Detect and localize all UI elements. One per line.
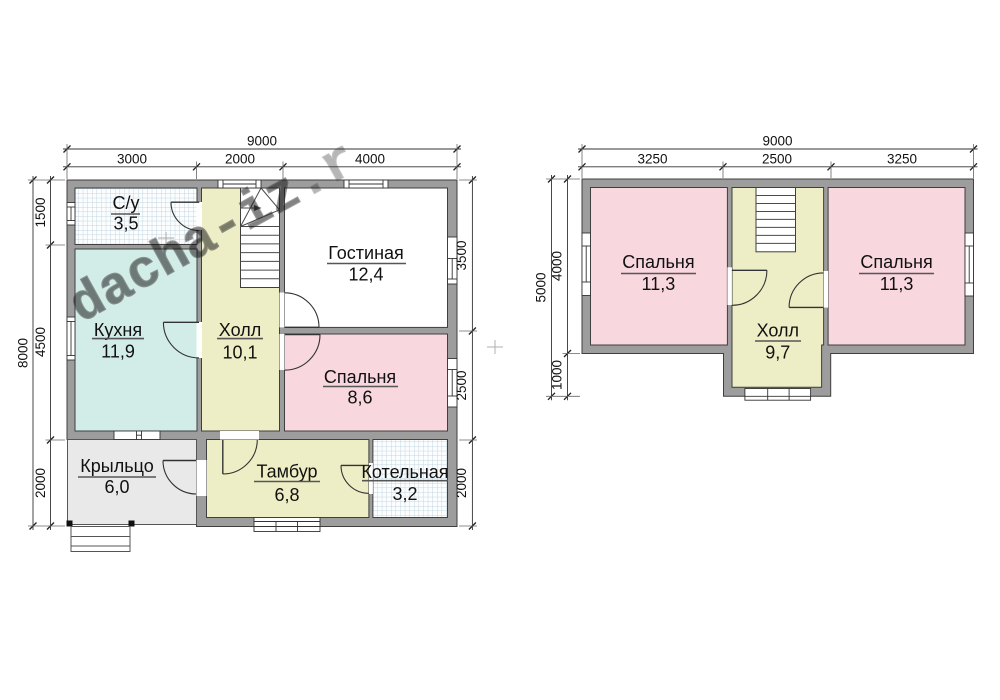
svg-text:3250: 3250 (637, 151, 667, 166)
svg-text:8000: 8000 (16, 338, 31, 368)
svg-text:6,8: 6,8 (274, 485, 299, 505)
svg-text:6,0: 6,0 (104, 477, 129, 497)
svg-text:Холл: Холл (219, 320, 261, 340)
svg-text:4500: 4500 (33, 327, 48, 357)
svg-text:3,5: 3,5 (113, 214, 138, 234)
svg-text:9000: 9000 (247, 134, 277, 149)
svg-text:Гостиная: Гостиная (328, 243, 404, 263)
svg-text:Крыльцо: Крыльцо (80, 456, 153, 476)
svg-text:4000: 4000 (550, 251, 565, 281)
svg-text:8,6: 8,6 (347, 388, 372, 408)
svg-text:11,3: 11,3 (880, 274, 914, 294)
svg-text:Котельная: Котельная (361, 462, 448, 482)
svg-text:3,2: 3,2 (392, 484, 417, 504)
svg-text:2500: 2500 (762, 151, 792, 166)
svg-text:3500: 3500 (454, 240, 469, 270)
svg-text:9000: 9000 (762, 134, 792, 149)
svg-text:11,9: 11,9 (101, 342, 135, 362)
svg-text:1500: 1500 (33, 197, 48, 227)
svg-text:10,1: 10,1 (222, 343, 257, 363)
svg-text:11,3: 11,3 (642, 274, 676, 294)
svg-text:Холл: Холл (757, 321, 799, 341)
svg-text:Спальня: Спальня (622, 252, 694, 272)
svg-text:2000: 2000 (225, 151, 255, 166)
svg-text:12,4: 12,4 (348, 265, 383, 285)
svg-text:Спальня: Спальня (860, 252, 932, 272)
svg-text:3000: 3000 (117, 151, 147, 166)
svg-text:9,7: 9,7 (765, 343, 790, 363)
svg-text:1000: 1000 (550, 360, 565, 390)
svg-text:2000: 2000 (33, 468, 48, 498)
svg-text:5000: 5000 (534, 272, 549, 302)
svg-text:Тамбур: Тамбур (256, 462, 317, 482)
svg-text:2500: 2500 (454, 370, 469, 400)
svg-text:Спальня: Спальня (324, 367, 396, 387)
svg-text:3250: 3250 (887, 151, 917, 166)
svg-text:4000: 4000 (355, 151, 385, 166)
svg-text:2000: 2000 (454, 468, 469, 498)
svg-text:С/у: С/у (113, 193, 140, 213)
